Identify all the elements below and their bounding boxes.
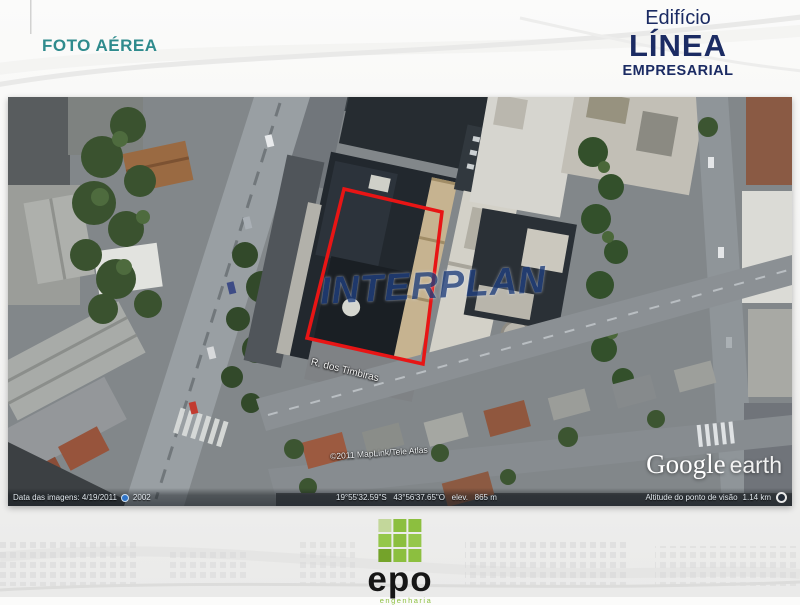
eye-altitude-label: Altitude do ponto de visão [645, 493, 737, 502]
logo-square [408, 534, 421, 547]
google-logo-text: Google [646, 449, 725, 479]
brand-line-3: EMPRESARIAL [578, 63, 778, 80]
slide: { "header": { "page_title": "FOTO AÉREA"… [0, 0, 800, 597]
status-bar: Data das imagens: 4/19/2011 2002 19°55'3… [8, 488, 792, 506]
epo-logo-grid [367, 519, 432, 562]
page-title: FOTO AÉREA [42, 36, 158, 56]
aerial-photo: INTERPLAN R. dos Timbiras ©2011 MapLink/… [8, 97, 792, 506]
epo-logo: epo engenharia [367, 519, 432, 605]
google-earth-logo: Googleearth [646, 449, 782, 480]
coordinates: 19°55'32.59"S 43°56'37.65"O elev. 865 m [336, 493, 497, 502]
brand-line-2: LÍNEA [578, 30, 778, 63]
earth-logo-text: earth [730, 452, 782, 478]
logo-square [378, 534, 391, 547]
compass-icon [776, 492, 787, 503]
epo-logo-tagline: engenharia [367, 596, 432, 605]
brand-line-1: Edifício [578, 7, 778, 30]
year-badge: 2002 [133, 493, 151, 502]
eye-altitude-value: 1.14 km [743, 493, 771, 502]
logo-square [393, 519, 406, 532]
historical-imagery-icon [121, 494, 129, 502]
imagery-date: Data das imagens: 4/19/2011 [13, 493, 117, 502]
eye-altitude-group: Altitude do ponto de visão 1.14 km [645, 492, 787, 503]
logo-square [378, 519, 391, 532]
imagery-date-group: Data das imagens: 4/19/2011 2002 [13, 493, 151, 502]
logo-square [408, 519, 421, 532]
epo-logo-name: epo [367, 563, 432, 596]
brand-block: Edifício LÍNEA EMPRESARIAL [578, 7, 778, 80]
logo-square [393, 534, 406, 547]
